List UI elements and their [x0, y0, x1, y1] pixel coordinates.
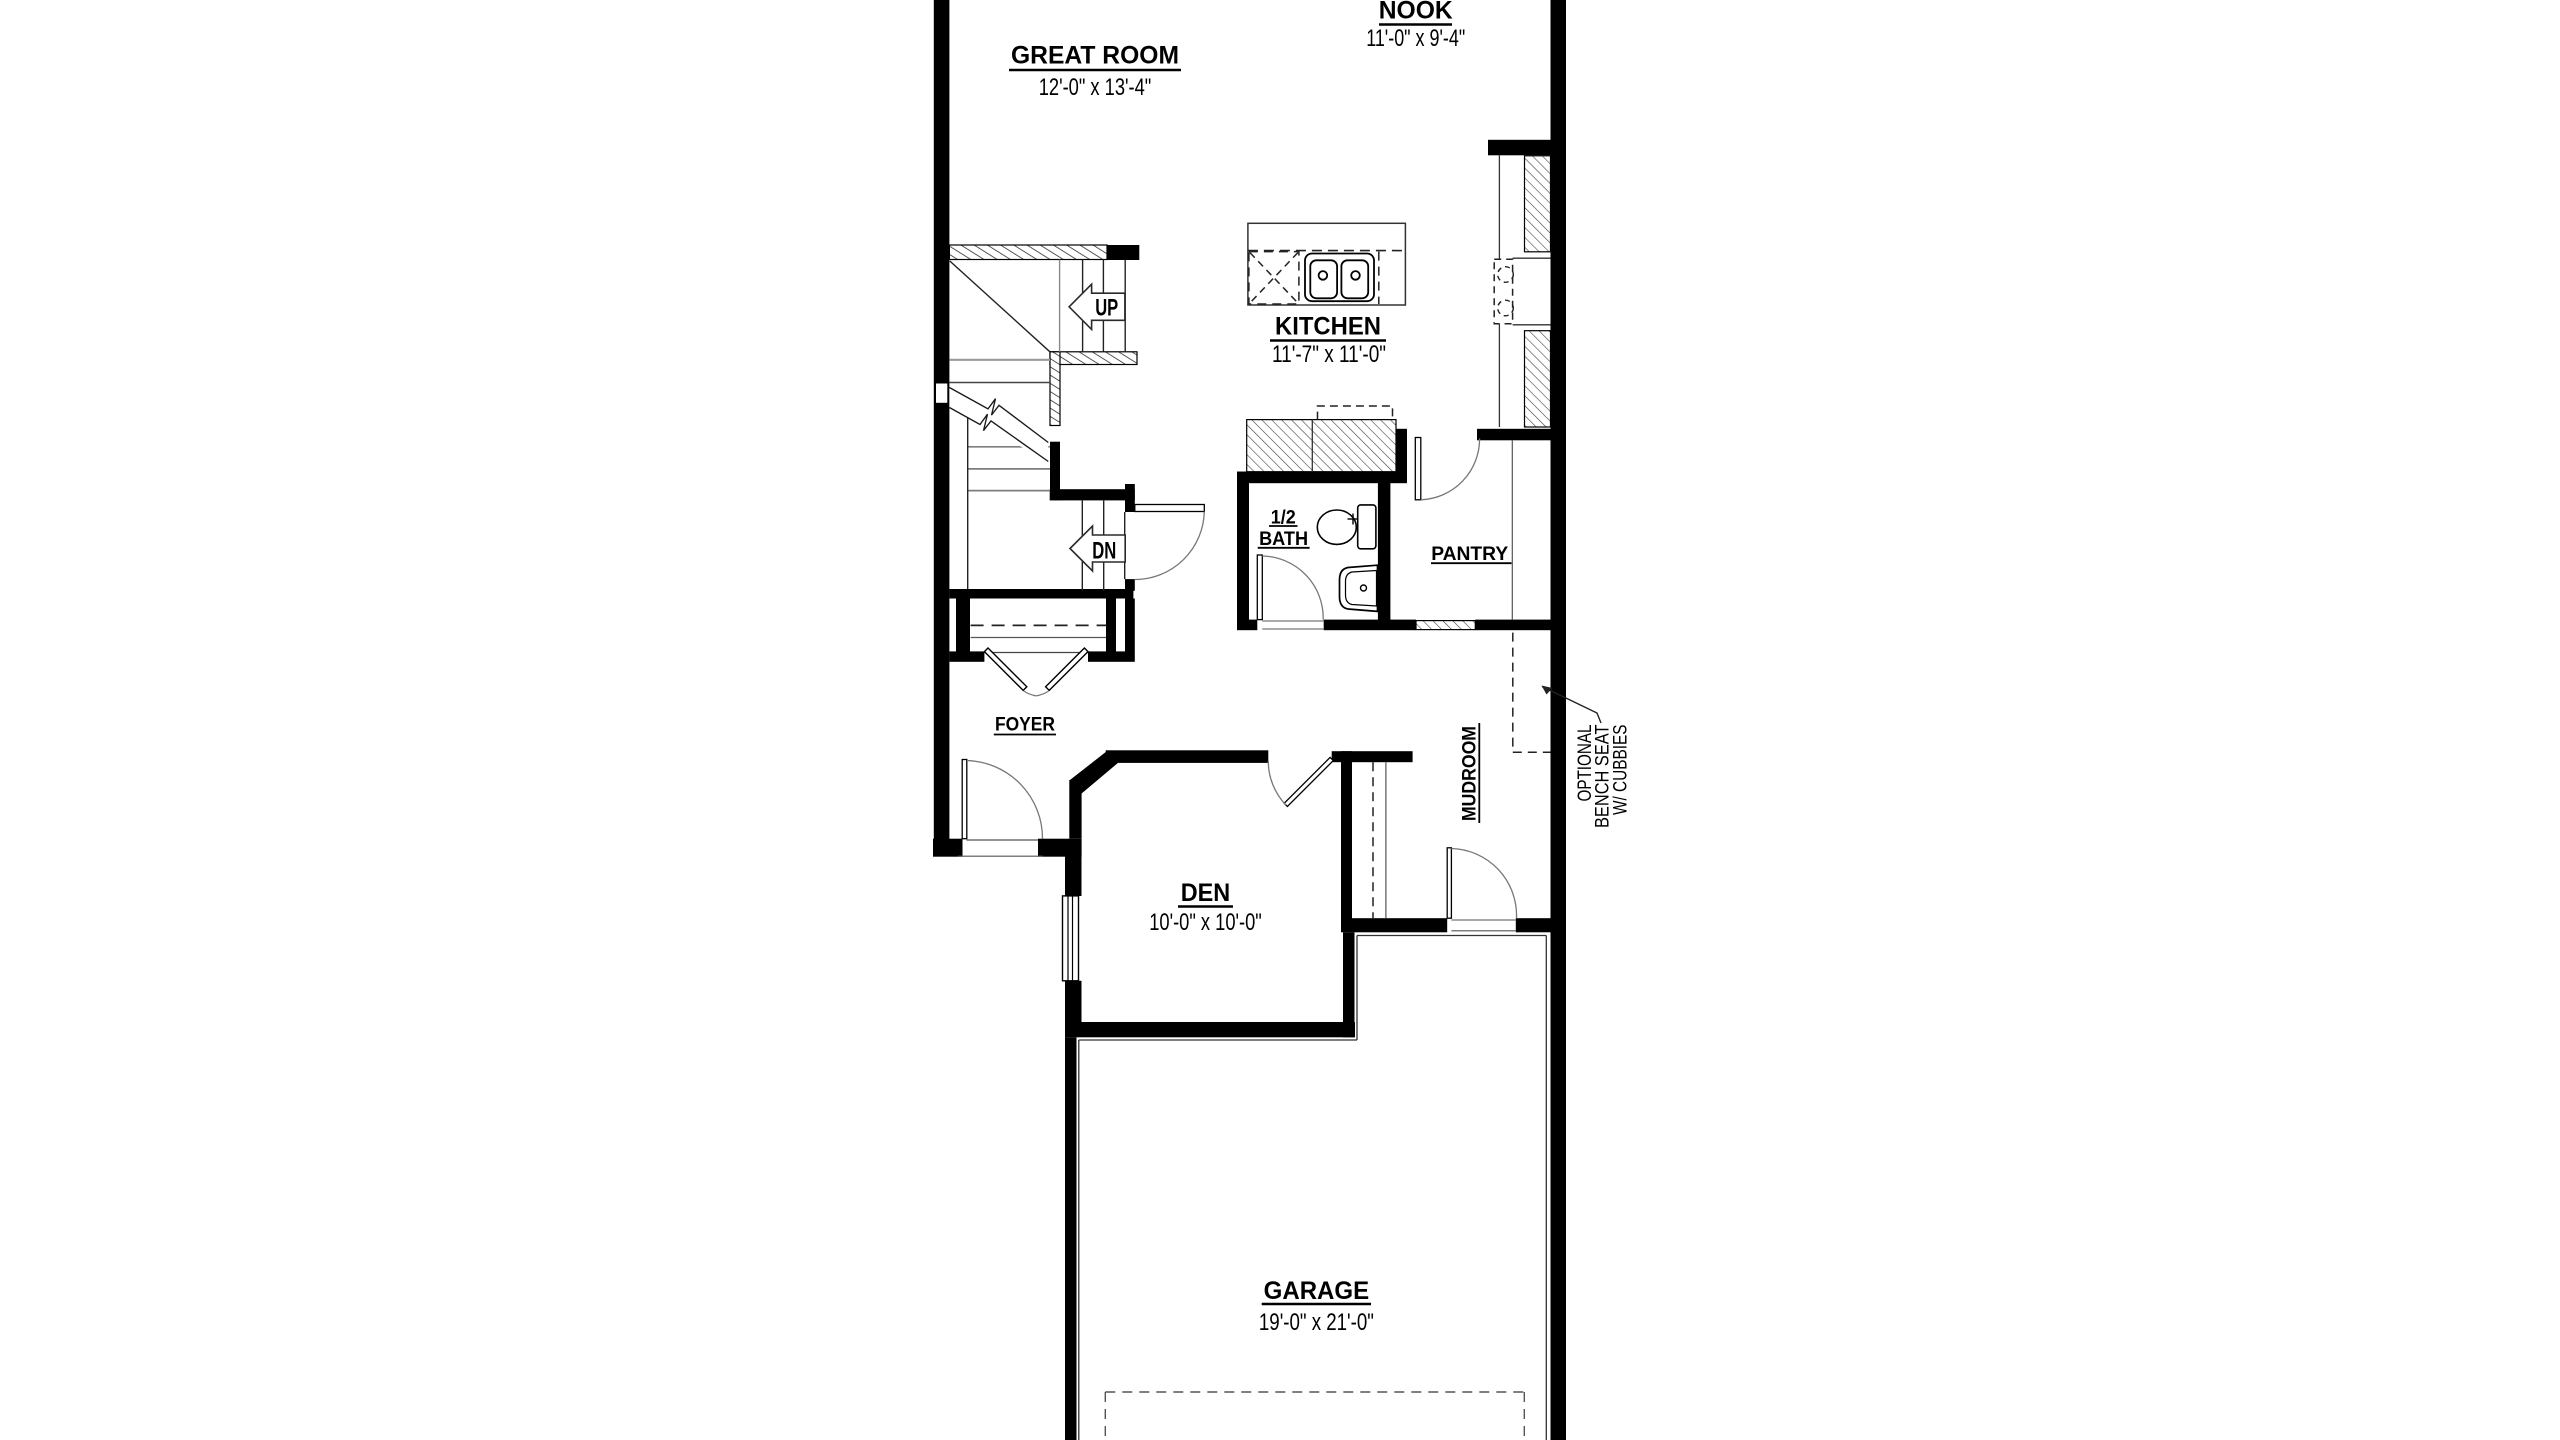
svg-text:19'-0" x 21'-0": 19'-0" x 21'-0"	[1259, 1309, 1374, 1336]
svg-text:PANTRY: PANTRY	[1431, 543, 1508, 565]
svg-text:W/ CUBBIES: W/ CUBBIES	[1610, 725, 1631, 816]
svg-text:UP: UP	[1095, 294, 1118, 321]
svg-text:KITCHEN: KITCHEN	[1275, 313, 1381, 341]
svg-text:11'-0" x 9'-4": 11'-0" x 9'-4"	[1366, 25, 1465, 52]
svg-text:10'-0" x 10'-0": 10'-0" x 10'-0"	[1149, 909, 1262, 936]
svg-text:FOYER: FOYER	[995, 714, 1055, 736]
svg-text:BATH: BATH	[1259, 528, 1308, 550]
svg-text:DN: DN	[1092, 538, 1116, 565]
svg-text:NOOK: NOOK	[1379, 0, 1453, 25]
svg-text:DEN: DEN	[1181, 879, 1231, 907]
svg-text:MUDROOM: MUDROOM	[1459, 726, 1481, 821]
svg-text:12'-0" x 13'-4": 12'-0" x 13'-4"	[1039, 74, 1152, 101]
svg-text:GARAGE: GARAGE	[1264, 1277, 1370, 1305]
svg-text:GREAT ROOM: GREAT ROOM	[1011, 42, 1179, 70]
svg-text:11'-7" x 11'-0": 11'-7" x 11'-0"	[1272, 341, 1386, 368]
